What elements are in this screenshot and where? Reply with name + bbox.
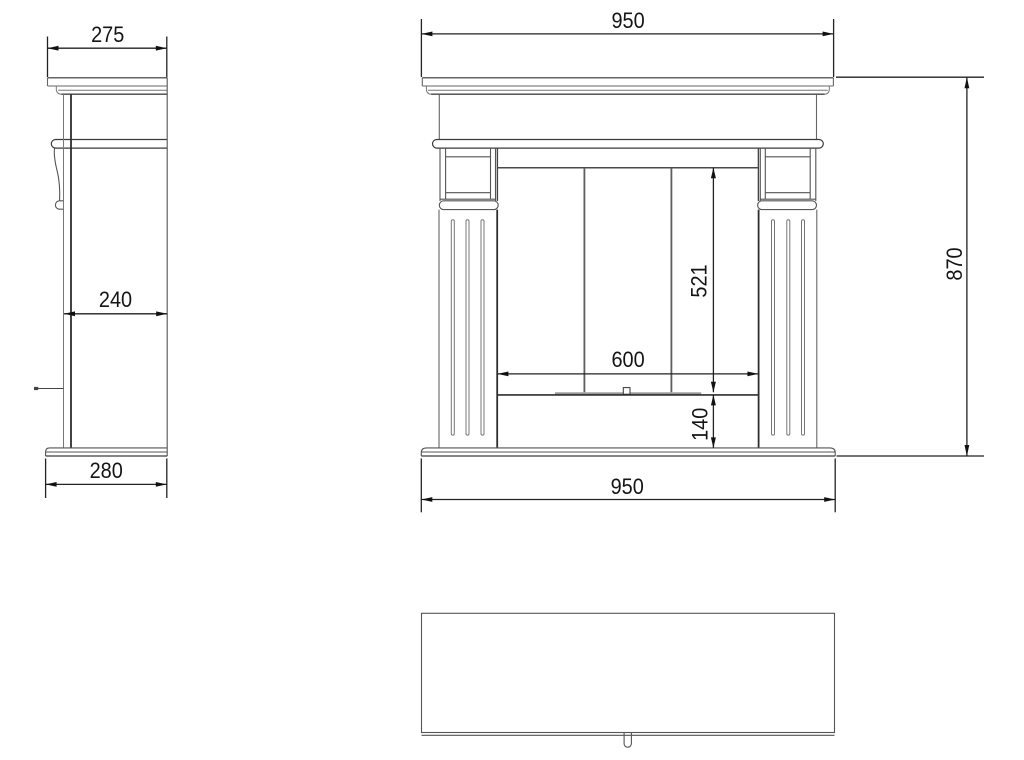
- svg-text:950: 950: [611, 474, 644, 499]
- svg-text:240: 240: [99, 287, 132, 312]
- svg-text:275: 275: [91, 22, 124, 47]
- svg-text:280: 280: [90, 458, 123, 483]
- svg-text:600: 600: [611, 347, 644, 372]
- svg-text:950: 950: [611, 8, 644, 33]
- svg-text:870: 870: [942, 247, 967, 280]
- svg-text:521: 521: [687, 264, 712, 297]
- svg-text:140: 140: [687, 408, 712, 441]
